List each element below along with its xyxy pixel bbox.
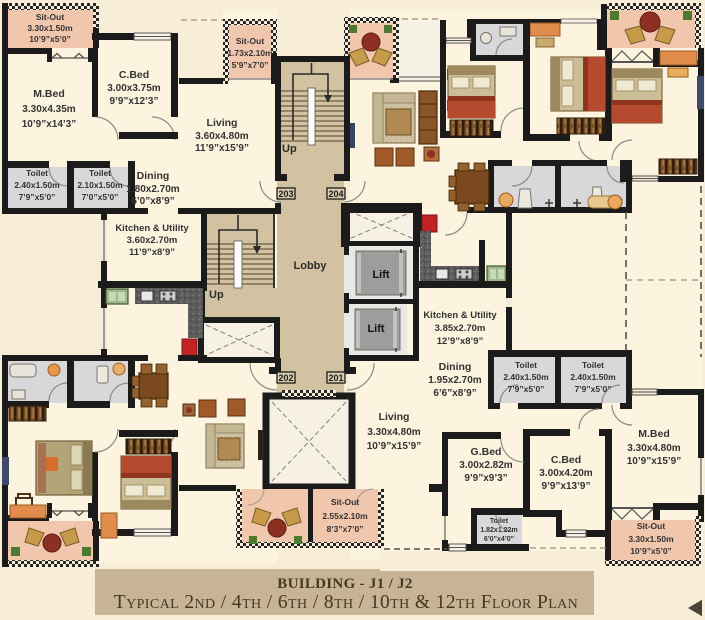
svg-text:Living: Living [379, 411, 410, 423]
svg-text:Lift: Lift [372, 269, 389, 281]
svg-text:1.80x2.70m: 1.80x2.70m [126, 184, 179, 195]
svg-text:Sit-Out: Sit-Out [36, 12, 64, 22]
svg-text:5’9”x7’0”: 5’9”x7’0” [232, 60, 269, 70]
svg-text:10’9”x15’9”: 10’9”x15’9” [627, 456, 682, 467]
svg-text:9’9”x9’3”: 9’9”x9’3” [464, 473, 507, 484]
svg-text:Toilet: Toilet [490, 518, 509, 525]
svg-text:C.Bed: C.Bed [551, 454, 581, 466]
svg-text:11’9”x15’9”: 11’9”x15’9” [195, 143, 249, 154]
svg-text:10’9”x14’3”: 10’9”x14’3” [22, 119, 77, 130]
svg-text:10’9”x15’9”: 10’9”x15’9” [367, 441, 422, 452]
svg-text:M.Bed: M.Bed [33, 88, 65, 100]
svg-text:3.30x4.80m: 3.30x4.80m [367, 427, 420, 438]
svg-text:Sit-Out: Sit-Out [236, 36, 264, 46]
svg-text:2.40x1.50m: 2.40x1.50m [14, 180, 60, 190]
svg-text:3.30x1.50m: 3.30x1.50m [628, 534, 674, 544]
svg-text:12’9”x8’9”: 12’9”x8’9” [437, 336, 484, 347]
svg-text:Dining: Dining [439, 361, 472, 373]
svg-text:Lobby: Lobby [294, 260, 328, 272]
svg-text:3.30x1.50m: 3.30x1.50m [27, 23, 73, 33]
svg-text:9’9”x12’3”: 9’9”x12’3” [110, 96, 159, 107]
svg-text:2.55x2.10m: 2.55x2.10m [322, 511, 368, 521]
svg-text:201: 201 [328, 373, 343, 383]
svg-text:3.85x2.70m: 3.85x2.70m [435, 323, 486, 334]
svg-text:7’9”x5’0”: 7’9”x5’0” [575, 384, 612, 394]
svg-text:10’9”x5’0”: 10’9”x5’0” [29, 34, 71, 44]
svg-text:11’9”x8’9”: 11’9”x8’9” [129, 247, 175, 258]
svg-text:Dining: Dining [137, 170, 170, 182]
svg-text:Up: Up [282, 143, 297, 155]
svg-text:1.73x2.10m: 1.73x2.10m [227, 48, 273, 58]
svg-text:Living: Living [207, 117, 238, 129]
svg-text:Toilet: Toilet [26, 168, 48, 178]
svg-text:203: 203 [278, 189, 293, 199]
svg-text:3.60x4.80m: 3.60x4.80m [195, 131, 248, 142]
svg-text:Toilet: Toilet [582, 360, 604, 370]
svg-text:Kitchen & Utility: Kitchen & Utility [423, 310, 497, 321]
svg-text:204: 204 [328, 189, 343, 199]
svg-text:G.Bed: G.Bed [471, 446, 502, 458]
svg-text:M.Bed: M.Bed [638, 428, 670, 440]
svg-text:3.00x3.75m: 3.00x3.75m [107, 83, 160, 94]
svg-text:6’0”x8’9”: 6’0”x8’9” [131, 196, 174, 207]
svg-text:Kitchen & Utility: Kitchen & Utility [115, 223, 189, 234]
svg-text:Typical 2nd / 4th / 6th / 8th: Typical 2nd / 4th / 6th / 8th / 10th & 1… [114, 592, 578, 613]
svg-text:6’6”x8’9”: 6’6”x8’9” [433, 388, 476, 399]
svg-text:3.00x2.82m: 3.00x2.82m [459, 460, 512, 471]
svg-text:C.Bed: C.Bed [119, 69, 149, 81]
svg-text:7’9”x5’0”: 7’9”x5’0” [19, 192, 56, 202]
svg-text:7’9”x5’0”: 7’9”x5’0” [508, 384, 545, 394]
svg-text:Sit-Out: Sit-Out [637, 521, 665, 531]
svg-text:2.10x1.50m: 2.10x1.50m [77, 180, 123, 190]
svg-text:6’0”x4’0”: 6’0”x4’0” [484, 536, 514, 543]
svg-text:9’9”x13’9”: 9’9”x13’9” [542, 481, 591, 492]
svg-text:Toilet: Toilet [89, 168, 111, 178]
svg-text:Toilet: Toilet [515, 360, 537, 370]
svg-text:3.60x2.70m: 3.60x2.70m [127, 235, 178, 246]
svg-text:Up: Up [209, 289, 224, 301]
svg-text:2.40x1.50m: 2.40x1.50m [503, 372, 549, 382]
svg-text:10’9”x5’0”: 10’9”x5’0” [630, 546, 672, 556]
svg-text:Lift: Lift [367, 323, 384, 335]
svg-text:3.30x4.80m: 3.30x4.80m [627, 443, 680, 454]
svg-text:3.30x4.35m: 3.30x4.35m [22, 104, 75, 115]
svg-text:1.82x1.22m: 1.82x1.22m [480, 527, 517, 534]
svg-text:1.95x2.70m: 1.95x2.70m [428, 375, 481, 386]
svg-text:2.40x1.50m: 2.40x1.50m [570, 372, 616, 382]
svg-text:8’3”x7’0”: 8’3”x7’0” [327, 524, 364, 534]
svg-text:7’0”x5’0”: 7’0”x5’0” [82, 192, 119, 202]
svg-text:Sit-Out: Sit-Out [331, 497, 359, 507]
svg-text:BUILDING - J1 / J2: BUILDING - J1 / J2 [277, 576, 412, 592]
svg-text:3.00x4.20m: 3.00x4.20m [539, 468, 592, 479]
svg-text:202: 202 [278, 373, 293, 383]
